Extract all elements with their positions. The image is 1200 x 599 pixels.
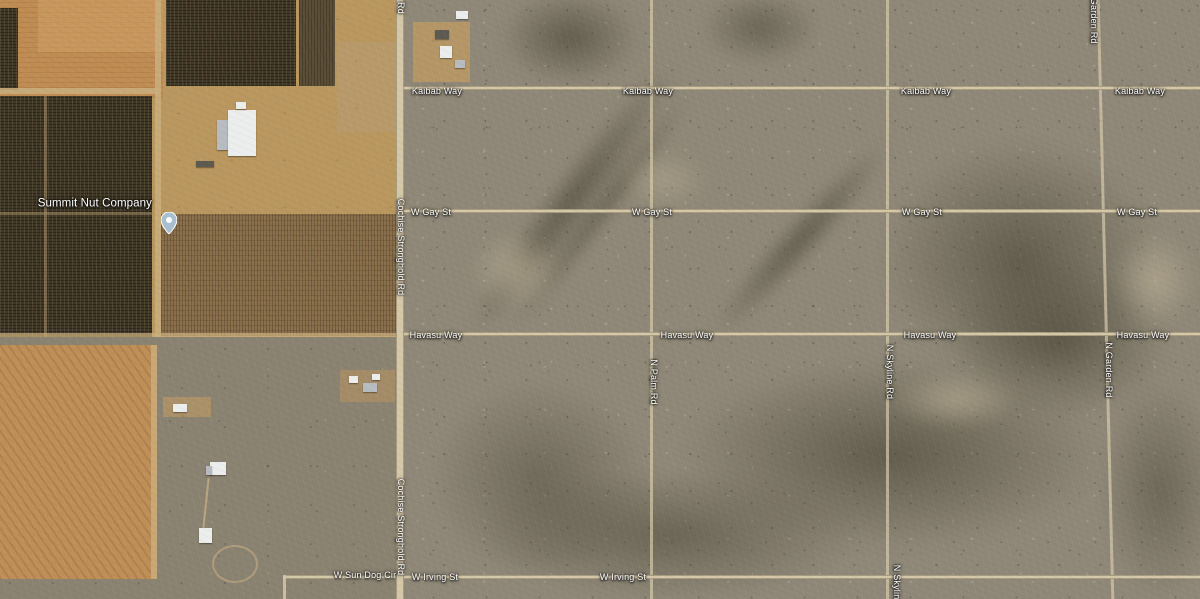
building bbox=[199, 528, 212, 543]
building bbox=[363, 383, 377, 392]
pin-icon bbox=[161, 212, 177, 234]
building bbox=[236, 102, 246, 109]
field-plot bbox=[38, 0, 163, 52]
road-havasu-way bbox=[398, 332, 1200, 336]
desert-wash bbox=[480, 470, 860, 599]
road-w-irving-st bbox=[283, 575, 1200, 579]
road-w-gay-st bbox=[398, 209, 1200, 213]
building bbox=[372, 374, 380, 380]
building bbox=[173, 404, 187, 412]
orchard-row-gap bbox=[0, 212, 152, 215]
building bbox=[435, 30, 449, 39]
building bbox=[210, 462, 226, 475]
building bbox=[440, 46, 452, 58]
desert-light-patch bbox=[1112, 230, 1197, 330]
building bbox=[228, 110, 256, 156]
field-plot bbox=[0, 345, 157, 579]
desert-light-patch bbox=[890, 370, 1020, 430]
building bbox=[206, 466, 212, 475]
desert-light-patch bbox=[470, 230, 560, 310]
road-w-sun-dog-cir bbox=[283, 575, 286, 599]
farm-track bbox=[0, 88, 161, 94]
orchard-block bbox=[299, 0, 335, 86]
building bbox=[456, 11, 468, 19]
orchard-block bbox=[166, 0, 296, 86]
desert-light-patch bbox=[620, 150, 710, 210]
farmstead-yard bbox=[337, 42, 398, 132]
satellite-map-canvas[interactable]: Kaibab WayKaibab WayKaibab WayKaibab Way… bbox=[0, 0, 1200, 599]
road-kaibab-way bbox=[398, 86, 1200, 90]
orchard-block bbox=[0, 8, 18, 90]
building bbox=[455, 60, 465, 68]
farm-track bbox=[0, 333, 398, 337]
vehicles-row bbox=[196, 161, 214, 167]
farmstead-yard bbox=[163, 397, 211, 417]
building bbox=[349, 376, 358, 383]
orchard-row-gap bbox=[44, 96, 47, 338]
road-cochise-stronghold bbox=[396, 0, 404, 599]
orchard-block bbox=[161, 214, 398, 336]
orchard-block bbox=[0, 96, 152, 338]
dirt-trail-loop bbox=[212, 545, 258, 583]
